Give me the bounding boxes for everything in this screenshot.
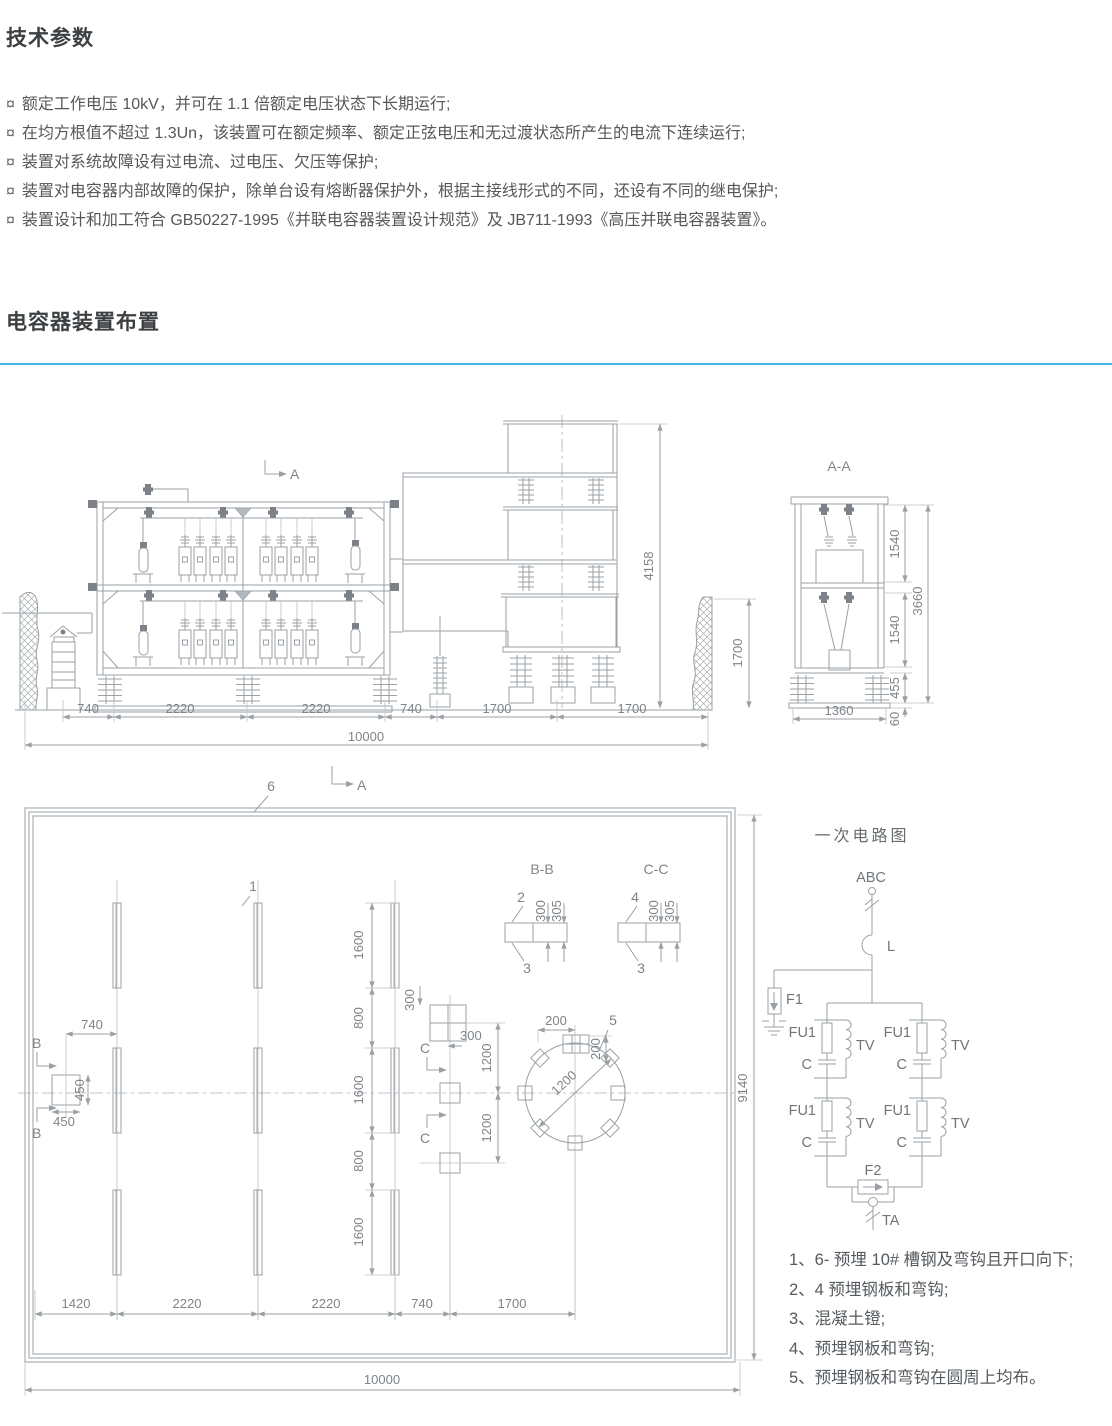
dim-label: 1700: [618, 701, 647, 716]
capacitor-label: C: [897, 1135, 907, 1151]
dim-label: 740: [411, 1296, 433, 1311]
dim-label: 300: [402, 989, 417, 1011]
dim-label: 450: [53, 1114, 75, 1129]
capacitor-units-tier2: [179, 618, 318, 665]
dim-label: 10000: [348, 729, 384, 744]
detail-bb: B-B 2 3 300 305: [505, 861, 567, 976]
capacitor-units-tier1: [179, 535, 318, 582]
elevation-view: A A 740 2220 2220 740 1700 1700 10000 41…: [2, 415, 756, 793]
arrester-f2: F2: [827, 1163, 922, 1202]
dim-label: 1540: [887, 530, 902, 559]
dim-label: 200: [588, 1038, 603, 1060]
dim-label: 200: [545, 1013, 567, 1028]
dim-label: 2220: [302, 701, 331, 716]
arrester-label: F2: [865, 1163, 882, 1179]
vt-label: TV: [951, 1116, 970, 1132]
connection-node-icon: [869, 888, 876, 895]
section-marker-a-bottom: A: [332, 766, 367, 793]
section-marker-label: C: [420, 1040, 430, 1056]
bus-label: ABC: [856, 870, 886, 886]
dim-label: 300: [460, 1028, 482, 1043]
legend-note: 2、4 预埋钢板和弯钩;: [789, 1276, 1073, 1306]
ct-label: TA: [882, 1213, 900, 1229]
section-marker-label: B: [32, 1125, 41, 1141]
section-marker-a-top: A: [265, 460, 300, 482]
dim-label: 1200: [479, 1114, 494, 1143]
capacitor-box: [816, 550, 863, 583]
fuse-label: FU1: [789, 1025, 816, 1041]
legend-notes: 1、6- 预埋 10# 槽钢及弯钩且开口向下; 2、4 预埋钢板和弯钩; 3、混…: [789, 1246, 1073, 1394]
plan-left-detail: 740 450 450: [52, 1017, 117, 1129]
section-aa-view: A-A 1540 1540 3660 455 60 1360: [789, 458, 934, 726]
dim-label: 1360: [825, 703, 854, 718]
inductor-icon: [862, 935, 872, 970]
legend-note: 3、混凝土镫;: [789, 1305, 1073, 1335]
callout-label: 3: [637, 960, 645, 976]
capacitor-rack: [88, 484, 399, 712]
dim-label: 3660: [910, 587, 925, 616]
callout-label: 6: [267, 778, 275, 794]
dim-label: 740: [400, 701, 422, 716]
section-aa-dimensions: 1540 1540 3660 455 60 1360: [793, 505, 934, 726]
callout-label: 5: [609, 1012, 617, 1028]
feed-line: [2, 613, 92, 633]
dim-label: 300: [646, 900, 661, 922]
legend-note: 1、6- 预埋 10# 槽钢及弯钩且开口向下;: [789, 1246, 1073, 1276]
dim-label: 9140: [735, 1074, 750, 1103]
engineering-drawing: A A 740 2220 2220 740 1700 1700 10000 41…: [0, 0, 1112, 1426]
inductor-label: L: [887, 939, 895, 955]
surge-arrester: [47, 626, 80, 710]
dim-label: 2220: [173, 1296, 202, 1311]
arrester-label: F1: [786, 992, 803, 1008]
legend-note: 5、预埋钢板和弯钩在圆周上均布。: [789, 1364, 1073, 1394]
callout-label: 3: [523, 960, 531, 976]
legend-note: 4、预埋钢板和弯钩;: [789, 1335, 1073, 1365]
section-marker-label: C: [420, 1130, 430, 1146]
dim-label: 1600: [351, 1218, 366, 1247]
vt-label: TV: [951, 1038, 970, 1054]
plan-chain-dimensions: 1600 800 1600 800 1600: [351, 903, 399, 1275]
vt-label: TV: [856, 1116, 875, 1132]
dim-label: 300: [533, 900, 548, 922]
primary-circuit-diagram: 一次电路图 ABC L F1 FU1 FU1 FU1 FU1 C C C C T…: [762, 827, 970, 1230]
section-title: A-A: [827, 458, 851, 474]
callout-label: 2: [517, 889, 525, 905]
dim-label: 800: [351, 1150, 366, 1172]
section-marker-label: B: [32, 1035, 41, 1051]
dim-label: 1600: [351, 931, 366, 960]
wall-left: [20, 592, 39, 710]
dim-label: 1420: [62, 1296, 91, 1311]
dim-label: 2220: [166, 701, 195, 716]
dim-label: 1700: [483, 701, 512, 716]
fuse-label: FU1: [884, 1103, 911, 1119]
dim-label: 450: [72, 1079, 87, 1101]
dim-label: 1700: [498, 1296, 527, 1311]
dim-label: 1700: [730, 639, 745, 668]
dim-label: 60: [887, 712, 902, 726]
section-marker-label: A: [290, 466, 300, 482]
dim-label: 10000: [364, 1372, 400, 1387]
section-marker-label: A: [357, 777, 367, 793]
dim-label: 1200: [479, 1044, 494, 1073]
detail-cc: C-C 4 3 300 305: [618, 861, 680, 976]
capacitor-label: C: [897, 1057, 907, 1073]
dim-label: 740: [81, 1017, 103, 1032]
dim-label: 455: [887, 677, 902, 699]
wall-right: [692, 597, 712, 710]
dim-label: 740: [77, 701, 99, 716]
circuit-title: 一次电路图: [814, 827, 909, 845]
fuse-label: FU1: [789, 1103, 816, 1119]
callout-label: 4: [631, 889, 639, 905]
dim-label: 305: [549, 900, 564, 922]
dim-label: 1540: [887, 616, 902, 645]
ground-icon: [762, 1014, 786, 1035]
capacitor-label: C: [802, 1135, 812, 1151]
dim-label: 800: [351, 1007, 366, 1029]
plan-middle-details: 300 300 1200 1200: [402, 986, 505, 1173]
plan-view: 6 1 1600 800 1600 800 1600 B B 740 450: [18, 778, 762, 1396]
detail-title: B-B: [530, 861, 553, 877]
callout-label: 1: [249, 878, 257, 894]
detail-title: C-C: [644, 861, 669, 877]
dim-label: 305: [662, 900, 677, 922]
vt-label: TV: [856, 1038, 875, 1054]
fuse-label: FU1: [884, 1025, 911, 1041]
reactor-stack: [390, 415, 620, 708]
dim-label: 4158: [641, 552, 656, 581]
anchor-circle: 1200 200 200 5: [518, 1012, 625, 1150]
dim-label: 1600: [351, 1076, 366, 1105]
capacitor-label: C: [802, 1057, 812, 1073]
dim-label: 2220: [312, 1296, 341, 1311]
